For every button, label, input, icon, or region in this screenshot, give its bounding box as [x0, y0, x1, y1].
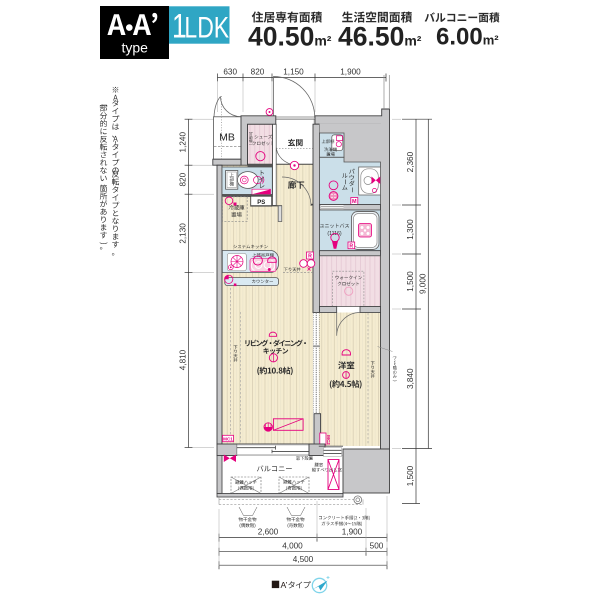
svg-text:9,000: 9,000	[418, 273, 427, 294]
svg-text:type: type	[121, 40, 148, 56]
svg-text:820: 820	[179, 172, 188, 186]
svg-text:2,600: 2,600	[258, 528, 279, 537]
svg-text:630: 630	[223, 68, 237, 77]
svg-text:MC1: MC1	[223, 436, 233, 441]
svg-text:820: 820	[251, 68, 265, 77]
svg-text:1,500: 1,500	[406, 271, 415, 292]
svg-text:3,840: 3,840	[406, 368, 415, 389]
svg-text:2,130: 2,130	[179, 223, 188, 244]
svg-text:2,360: 2,360	[406, 151, 415, 172]
svg-text:4,500: 4,500	[293, 555, 314, 564]
svg-text:MC2: MC2	[326, 435, 331, 445]
svg-text:500: 500	[370, 542, 384, 551]
svg-text:4,000: 4,000	[282, 542, 303, 551]
svg-text:1,900: 1,900	[340, 68, 361, 77]
svg-text:R: R	[349, 243, 353, 249]
svg-text:1,300: 1,300	[406, 219, 415, 240]
svg-text:1,240: 1,240	[179, 132, 188, 153]
svg-text:(1116): (1116)	[327, 231, 341, 237]
svg-text:A’: A’	[281, 580, 288, 590]
svg-text:PS: PS	[257, 200, 265, 206]
svg-text:1,900: 1,900	[342, 528, 363, 537]
svg-text:1,500: 1,500	[406, 465, 415, 486]
svg-text:4,810: 4,810	[179, 349, 188, 370]
svg-text:MB: MB	[219, 132, 235, 144]
svg-text:1LDK: 1LDK	[172, 7, 229, 45]
svg-text:R: R	[308, 254, 312, 260]
svg-text:1,150: 1,150	[283, 68, 304, 77]
